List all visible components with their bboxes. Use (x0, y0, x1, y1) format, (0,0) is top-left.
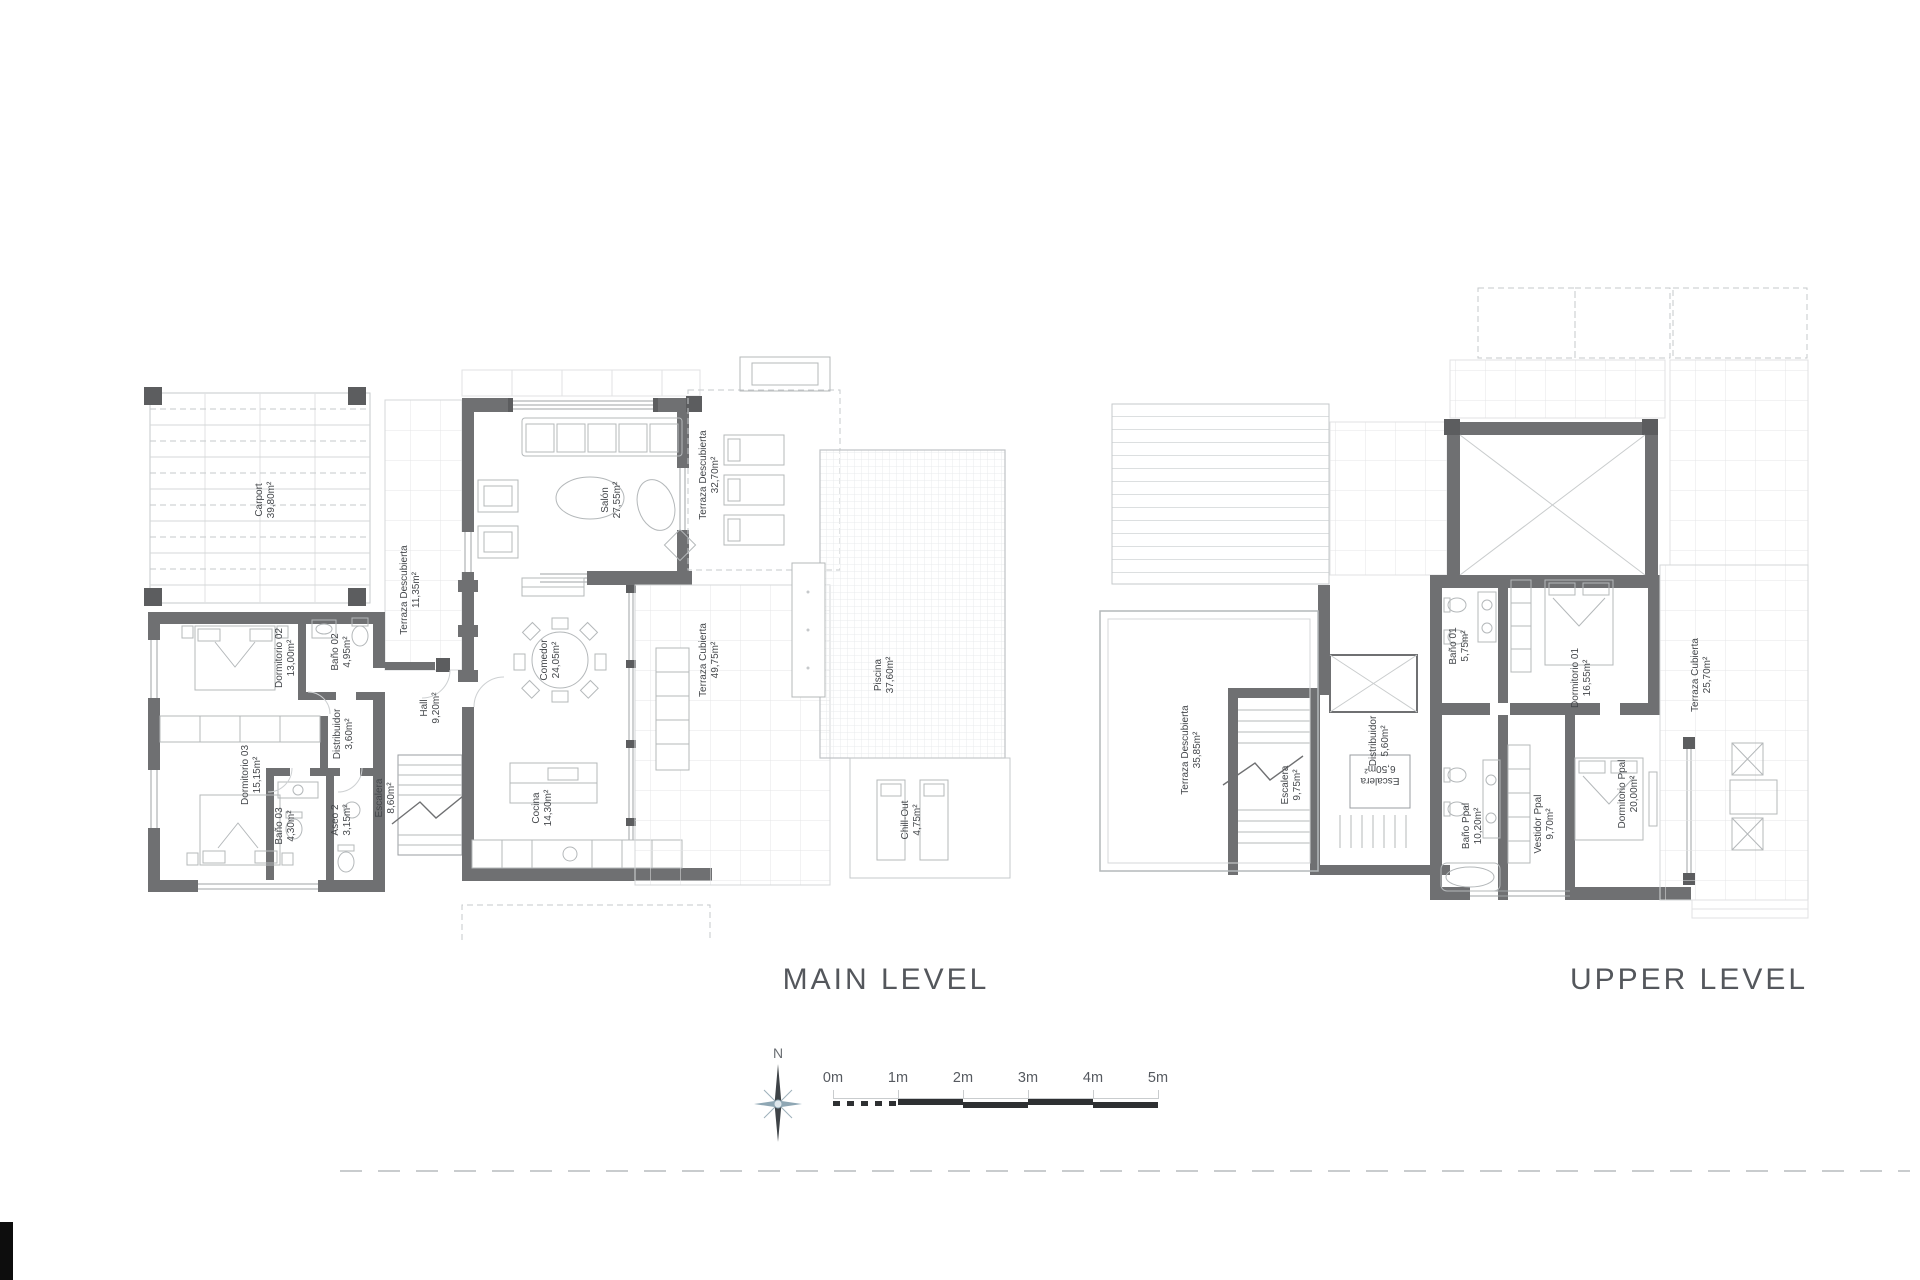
svg-text:9,70m²: 9,70m² (1545, 808, 1556, 840)
salon-armchairs (478, 480, 518, 558)
window (461, 532, 475, 572)
svg-text:Baño 02: Baño 02 (330, 633, 341, 671)
room-label-hall: Hall9,20m² (419, 692, 442, 724)
svg-text:Terraza Cubierta: Terraza Cubierta (1690, 638, 1701, 712)
vestidor-closet (1508, 745, 1530, 863)
dorm-ppal-furniture (1575, 758, 1657, 840)
room-label-escalera-void: Escalera6,50m² (1360, 763, 1399, 786)
salon-sofa (522, 418, 682, 456)
room-label-carport: Carport39,80m² (254, 481, 277, 518)
main-level-title: MAIN LEVEL (766, 960, 1006, 1000)
svg-text:Piscina: Piscina (873, 658, 884, 691)
svg-text:3,60m²: 3,60m² (344, 718, 355, 750)
svg-text:13,00m²: 13,00m² (286, 639, 297, 676)
svg-text:39,80m²: 39,80m² (266, 481, 277, 518)
svg-text:37,60m²: 37,60m² (885, 656, 896, 693)
scale-seg-3 (1028, 1099, 1093, 1105)
room-label-salon: Salón27,55m² (600, 481, 623, 518)
upper-bedroom-walls (1430, 575, 1695, 900)
scale-bar: 0m 1m 2m 3m 4m 5m (833, 1070, 1159, 1115)
sun-loungers (724, 435, 784, 545)
svg-text:20,00m²: 20,00m² (1629, 775, 1640, 812)
svg-text:4,75m²: 4,75m² (912, 804, 923, 836)
svg-text:11,35m²: 11,35m² (411, 571, 422, 608)
svg-text:Dormitorio 03: Dormitorio 03 (240, 745, 251, 805)
svg-text:Cocina: Cocina (531, 792, 542, 824)
window (147, 770, 161, 828)
room-label-bano-01: Baño 015,75m² (1448, 627, 1471, 665)
svg-text:Terraza Descubierta: Terraza Descubierta (399, 545, 410, 635)
svg-text:25,70m²: 25,70m² (1702, 656, 1713, 693)
scale-label-5m: 5m (1148, 1070, 1168, 1086)
scale-label-2m: 2m (953, 1070, 973, 1086)
svg-text:Baño Ppal: Baño Ppal (1461, 803, 1472, 849)
dining-table (514, 578, 606, 702)
svg-text:49,75m²: 49,75m² (710, 641, 721, 678)
skylight-void (1330, 655, 1417, 712)
svg-text:8,60m²: 8,60m² (386, 782, 397, 814)
scale-label-3m: 3m (1018, 1070, 1038, 1086)
window (198, 884, 318, 889)
svg-text:14,30m²: 14,30m² (543, 789, 554, 826)
room-label-distribuidor-upper: Distribuidor5,60m² (1368, 715, 1391, 766)
window (680, 468, 685, 530)
room-label-dormitorio-03: Dormitorio 0315,15m² (240, 745, 263, 805)
room-label-terraza-descubierta-32: Terraza Descubierta32,70m² (698, 430, 721, 520)
scale-seg-2 (963, 1102, 1028, 1108)
plot-dashed-line (462, 905, 710, 940)
svg-text:Aseo 2: Aseo 2 (330, 804, 341, 836)
svg-text:27,55m²: 27,55m² (612, 481, 623, 518)
main-stair (392, 755, 468, 855)
room-label-escalera: Escalera8,60m² (374, 778, 397, 817)
lower-terrace-grid (1330, 422, 1447, 575)
svg-text:Distribuidor: Distribuidor (332, 708, 343, 759)
upper-covered-terrace (1660, 565, 1808, 918)
svg-text:5,60m²: 5,60m² (1380, 725, 1391, 757)
svg-text:Baño 03: Baño 03 (274, 807, 285, 845)
svg-text:Dormitorio 01: Dormitorio 01 (1570, 648, 1581, 708)
svg-text:Vestidor Ppal: Vestidor Ppal (1533, 795, 1544, 854)
room-label-terraza-descubierta-35: Terraza Descubierta35,85m² (1180, 705, 1203, 795)
room-label-chill-out: Chill-Out4,75m² (900, 800, 923, 839)
scale-seg-4 (1093, 1102, 1158, 1108)
room-label-cocina: Cocina14,30m² (531, 789, 554, 826)
svg-text:9,20m²: 9,20m² (431, 692, 442, 724)
window (1470, 891, 1570, 896)
svg-text:Carport: Carport (254, 483, 265, 517)
svg-text:32,70m²: 32,70m² (710, 456, 721, 493)
room-label-aseo-2: Aseo 23,15m² (330, 804, 353, 836)
room-label-dormitorio-01: Dormitorio 0116,55m² (1570, 648, 1593, 708)
floorplan-page: { "main_level": { "title": "MAIN LEVEL",… (0, 0, 1920, 1280)
scale-seg-dashed (833, 1101, 898, 1106)
room-label-bano-ppal: Baño Ppal10,20m² (1461, 803, 1484, 849)
svg-text:Escalera: Escalera (374, 778, 385, 817)
svg-text:3,15m²: 3,15m² (342, 804, 353, 836)
svg-text:35,85m²: 35,85m² (1192, 731, 1203, 768)
room-label-distribuidor: Distribuidor3,60m² (332, 708, 355, 759)
scale-label-0m: 0m (823, 1070, 843, 1086)
terrace-11-area (385, 400, 462, 698)
svg-text:15,15m²: 15,15m² (252, 756, 263, 793)
svg-text:Distribuidor: Distribuidor (1368, 715, 1379, 766)
carport-roof-stripes (1112, 404, 1329, 584)
svg-text:4,95m²: 4,95m² (342, 636, 353, 668)
svg-text:Hall: Hall (419, 699, 430, 716)
page-corner-mark (0, 1222, 13, 1280)
boundary-dashed-line (340, 1170, 1910, 1172)
scale-seg-1 (898, 1099, 963, 1105)
stair-core (1223, 585, 1450, 875)
room-label-escalera-upper: Escalera9,75m² (1280, 765, 1303, 804)
svg-text:Dormitorio 02: Dormitorio 02 (274, 628, 285, 688)
room-label-bano-02: Baño 024,95m² (330, 633, 353, 671)
salon-tables (556, 475, 696, 561)
svg-text:N: N (773, 1045, 783, 1061)
chillout-area (850, 758, 1010, 878)
svg-text:Dormitorio Ppal: Dormitorio Ppal (1617, 760, 1628, 829)
svg-text:4,30m²: 4,30m² (286, 810, 297, 842)
dorm01-furniture (1511, 580, 1613, 672)
room-label-vestidor-ppal: Vestidor Ppal9,70m² (1533, 795, 1556, 854)
svg-text:24,05m²: 24,05m² (551, 641, 562, 678)
svg-text:Escalera: Escalera (1360, 775, 1399, 786)
svg-text:Comedor: Comedor (539, 639, 550, 681)
scale-label-4m: 4m (1083, 1070, 1103, 1086)
room-label-bano-03: Baño 034,30m² (274, 807, 297, 845)
void-over-salon (1444, 419, 1658, 588)
room-label-comedor: Comedor24,05m² (539, 639, 562, 681)
upper-level-title: UPPER LEVEL (1564, 960, 1814, 1000)
svg-text:Terraza Descubierta: Terraza Descubierta (1180, 705, 1191, 795)
upper-level-plan: Terraza Descubierta35,85m² Escalera9,75m… (1095, 280, 1815, 960)
svg-text:Chill-Out: Chill-Out (900, 800, 911, 839)
dorm02-bed (182, 626, 288, 690)
window (147, 640, 161, 698)
window (508, 398, 658, 412)
svg-text:9,75m²: 9,75m² (1292, 769, 1303, 801)
svg-text:Terraza Descubierta: Terraza Descubierta (698, 430, 709, 520)
room-label-piscina: Piscina37,60m² (873, 656, 896, 693)
svg-text:10,20m²: 10,20m² (1473, 807, 1484, 844)
svg-text:Escalera: Escalera (1280, 765, 1291, 804)
pool (792, 450, 1005, 758)
svg-text:Terraza Cubierta: Terraza Cubierta (698, 623, 709, 697)
svg-text:16,55m²: 16,55m² (1582, 659, 1593, 696)
svg-text:Baño 01: Baño 01 (1448, 627, 1459, 665)
main-level-plan: Carport39,80m² Dormitorio 0213,00m² Baño… (140, 340, 1040, 980)
scale-label-1m: 1m (888, 1070, 908, 1086)
room-label-dormitorio-02: Dormitorio 0213,00m² (274, 628, 297, 688)
north-compass-icon: N (752, 1042, 804, 1142)
svg-text:5,75m²: 5,75m² (1460, 630, 1471, 662)
svg-text:Salón: Salón (600, 487, 611, 513)
dorm02-closet (160, 716, 320, 742)
svg-text:6,50m²: 6,50m² (1364, 763, 1396, 774)
